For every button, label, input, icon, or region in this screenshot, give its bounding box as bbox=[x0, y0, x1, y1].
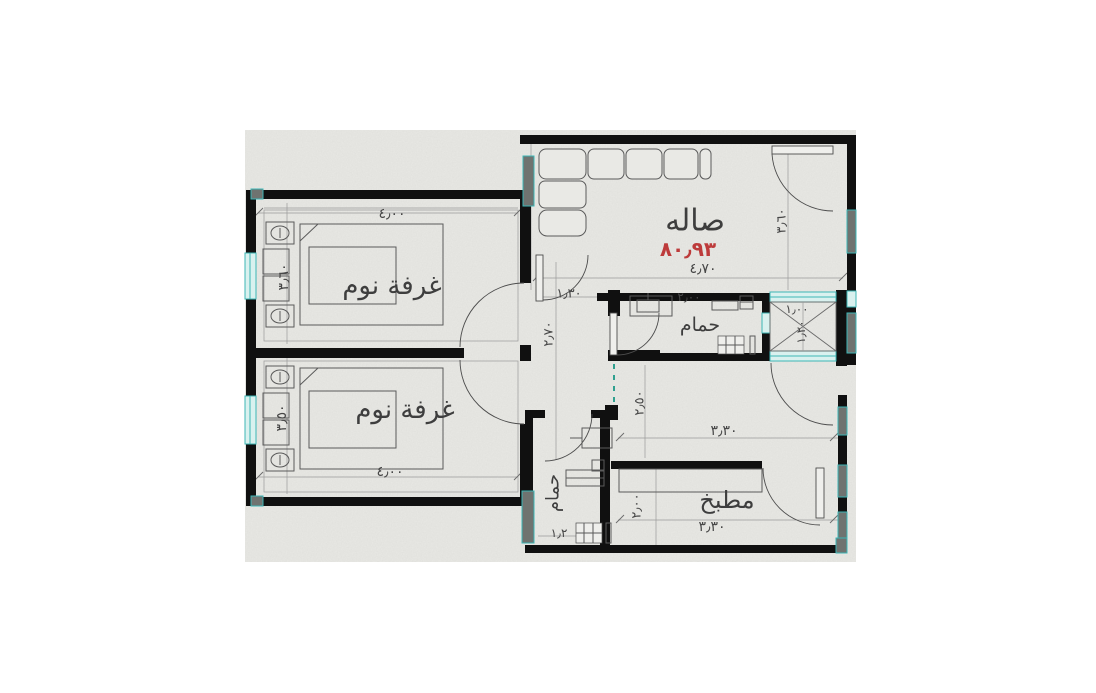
bathroom-top-width-dim: ٢٫٠٠ bbox=[677, 290, 700, 304]
shaft-height-dim: ١٫٢٠ bbox=[794, 320, 808, 343]
kitchen-width-dim: ٣٫٣٠ bbox=[698, 519, 725, 535]
kitchen-door-leaf bbox=[816, 468, 824, 518]
hall-door-leaf bbox=[536, 255, 543, 301]
hall-width-dim: ٤٫٧٠ bbox=[689, 261, 716, 277]
hall-area-value: ٨٠٫٩٣ bbox=[660, 237, 716, 261]
bedroom-bottom-label: غرفة نوم bbox=[355, 395, 454, 425]
hall-height-dim: ٣٫٦٠ bbox=[775, 208, 790, 233]
bedroom-top-label: غرفة نوم bbox=[342, 271, 441, 301]
bedroom-bottom-height-dim: ٣٫٥٠ bbox=[274, 404, 290, 431]
bedroom-top-width-dim: ٤٫٠٠ bbox=[378, 206, 405, 222]
hall-label: صاله bbox=[665, 204, 725, 239]
bedroom-top-height-dim: ٣٫٦٠ bbox=[276, 263, 292, 290]
dining-height-dim: ٢٫٥٠ bbox=[633, 390, 648, 415]
bathroom-top-label: حمام bbox=[680, 314, 720, 336]
bathroom-top-door-leaf bbox=[610, 313, 617, 355]
corridor-height-dim: ٢٫٧٠ bbox=[542, 321, 557, 346]
bedroom-bottom-width-dim: ٤٫٠٠ bbox=[376, 464, 403, 480]
bathroom-bottom-width-dim: ١٫٢ bbox=[551, 526, 568, 540]
kitchen-height-dim: ٢٫٠٠ bbox=[630, 493, 645, 518]
entrance-door-leaf bbox=[772, 146, 833, 154]
corridor-width-dim: ١٫٣٠ bbox=[556, 287, 581, 302]
bathroom-bottom-label: حمام bbox=[543, 474, 564, 512]
floor-plan-page: غرفة نوم ٤٫٠٠ ٣٫٦٠ غرفة نوم ٤٫٠٠ ٣٫٥٠ صا… bbox=[0, 0, 1096, 693]
shaft-width-dim: ١٫٠٠ bbox=[785, 302, 808, 316]
dining-width-dim: ٣٫٣٠ bbox=[710, 423, 737, 439]
kitchen-label: مطبخ bbox=[699, 486, 754, 514]
